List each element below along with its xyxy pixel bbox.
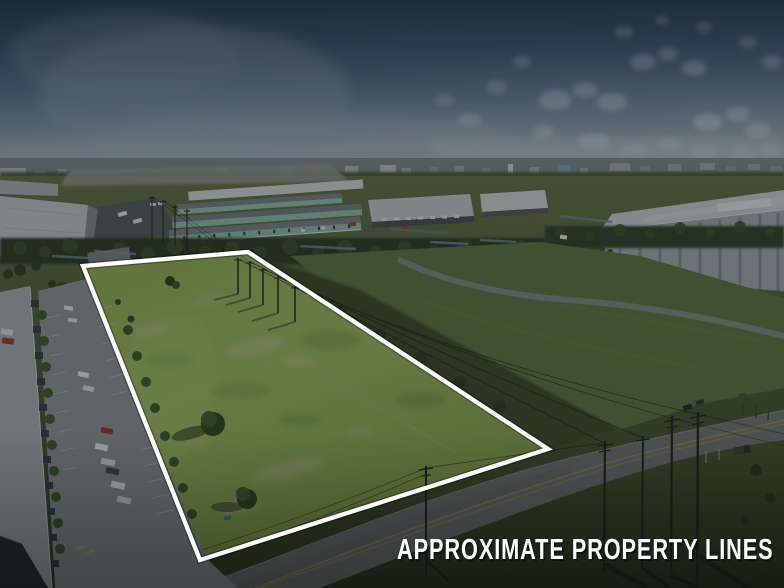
caption: APPROXIMATE PROPERTY LINES APPROXIMATE P… bbox=[397, 534, 775, 568]
caption-label: APPROXIMATE PROPERTY LINES bbox=[397, 534, 774, 566]
aerial-property-photo: APPROXIMATE PROPERTY LINES APPROXIMATE P… bbox=[0, 0, 784, 588]
vignette-top bbox=[0, 0, 784, 120]
